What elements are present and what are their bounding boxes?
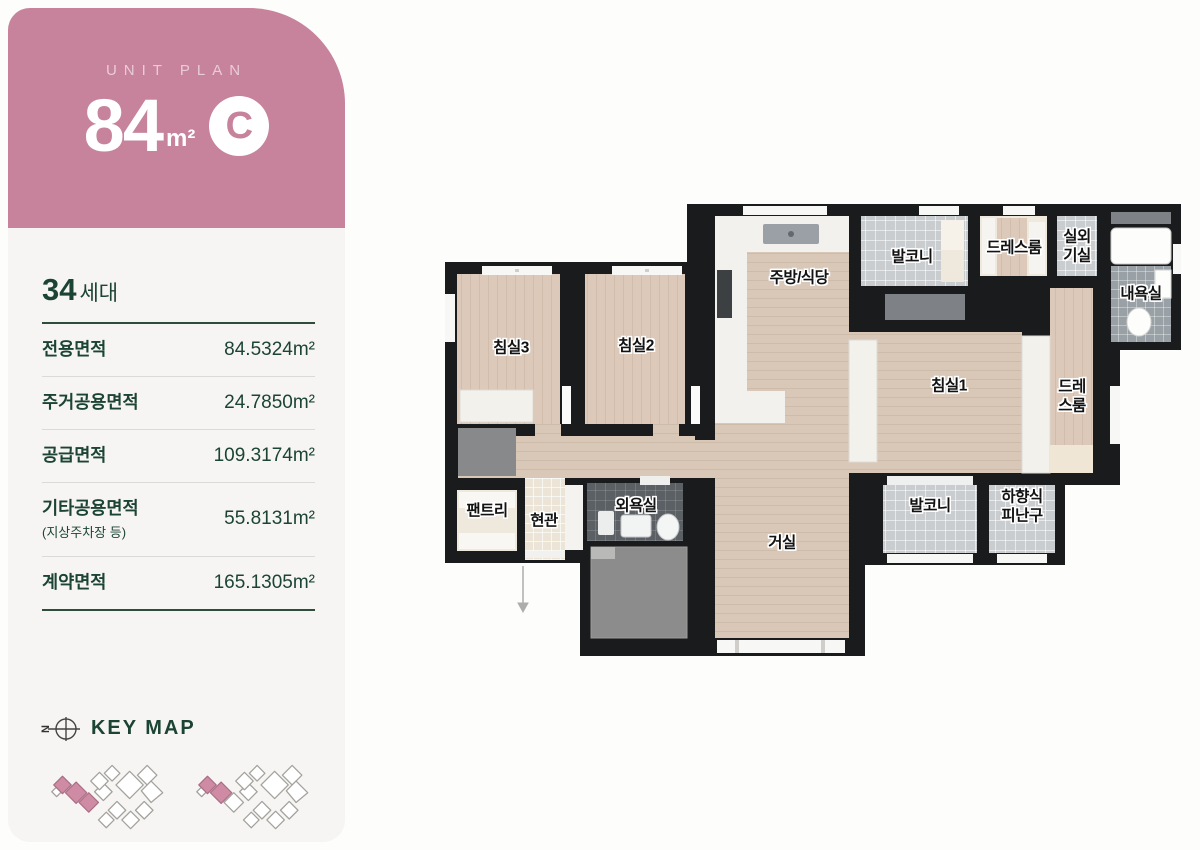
bathtub (1111, 228, 1171, 264)
room-label-master-bath: 내욕실 (1120, 284, 1161, 303)
bedroom3-wardrobe (460, 390, 533, 422)
area-label: 전용면적 (42, 339, 106, 361)
room-label-dressroom-right: 드레 스룸 (1058, 378, 1086, 417)
unit-area-number: 84 (84, 89, 162, 163)
area-value: 55.8131m² (224, 508, 315, 530)
room-label-kitchen: 주방/식당 (770, 268, 829, 287)
room-label-outdoor-unit: 실외 기실 (1063, 228, 1091, 267)
room-label-bedroom1: 침실1 (931, 376, 967, 395)
table-row: 공급면적 109.3174m² (42, 429, 315, 482)
area-table: 전용면적 84.5324m² 주거공용면적 24.7850m² 공급면적 109… (42, 322, 315, 611)
room-label-living: 거실 (768, 533, 796, 552)
keymap-section: N KEY MAP (42, 715, 315, 843)
keymap-thumbnail-2[interactable] (189, 759, 316, 843)
shoe-cabinet (565, 485, 583, 550)
table-row: 기타공용면적 (지상주차장 등) 55.8131m² (42, 482, 315, 556)
area-value: 24.7850m² (224, 392, 315, 414)
keymap-thumbnail-1[interactable] (44, 759, 171, 843)
room-label-balcony-top: 발코니 (891, 247, 932, 266)
area-sublabel: (지상주차장 등) (42, 522, 139, 541)
unit-summary: 34 세대 전용면적 84.5324m² 주거공용면적 24.7850m² 공급… (8, 272, 345, 843)
duct (885, 294, 965, 320)
closet-box (458, 428, 516, 476)
area-value: 84.5324m² (224, 339, 315, 361)
room-label-dressroom-top: 드레스룸 (986, 238, 1041, 257)
area-value: 165.1305m² (214, 572, 315, 594)
compass-cross-icon (47, 715, 81, 743)
compass-icon: N (42, 715, 81, 743)
area-value: 109.3174m² (214, 445, 315, 467)
room-label-entrance: 현관 (530, 511, 558, 530)
area-label: 계약면적 (42, 572, 106, 594)
room-label-bedroom3: 침실3 (493, 338, 529, 357)
storage-box (591, 547, 687, 638)
area-label: 기타공용면적 (42, 498, 139, 520)
area-label: 공급면적 (42, 445, 106, 467)
table-row: 주거공용면적 24.7850m² (42, 376, 315, 429)
dressroom-right-wardrobe (1022, 336, 1050, 473)
kitchen-appliance (717, 270, 732, 318)
balcony-bottom-floor (883, 485, 977, 553)
unit-type-badge: C (209, 96, 269, 156)
households-suffix: 세대 (79, 277, 118, 307)
room-label-common-bath: 외욕실 (615, 496, 656, 515)
toilet (1127, 308, 1151, 336)
floor-plan: 침실3 침실2 주방/식당 발코니 드레스룸 실외 기실 내욕실 침실1 드레 … (425, 190, 1195, 700)
room-label-escape-hatch: 하향식 피난구 (1001, 488, 1042, 527)
keymap-title: KEY MAP (91, 717, 196, 740)
households: 34 세대 (42, 272, 315, 322)
compass-north-label: N (40, 725, 52, 733)
table-row: 계약면적 165.1305m² (42, 556, 315, 609)
keymap-thumbnails (44, 759, 315, 843)
room-label-bedroom2: 침실2 (618, 336, 654, 355)
table-row: 전용면적 84.5324m² (42, 324, 315, 376)
unit-plan-header: UNIT PLAN 84 m² C (8, 8, 345, 228)
unit-size: 84 m² C (8, 89, 345, 163)
bedroom1-wardrobe (849, 340, 877, 462)
room-label-pantry: 팬트리 (466, 501, 507, 520)
room-label-balcony-bottom: 발코니 (909, 496, 950, 515)
unit-type-letter: C (226, 105, 253, 148)
unit-plan-eyebrow: UNIT PLAN (8, 8, 345, 79)
floor-plan-drawing (425, 190, 1195, 700)
area-label: 주거공용면적 (42, 392, 139, 414)
keymap-head: N KEY MAP (42, 715, 315, 743)
households-number: 34 (42, 272, 76, 308)
unit-area-unit: m² (166, 125, 195, 153)
unit-plan-card: UNIT PLAN 84 m² C 34 세대 전용면적 84.5324m² 주… (8, 8, 345, 842)
entrance-arrow (518, 566, 528, 612)
